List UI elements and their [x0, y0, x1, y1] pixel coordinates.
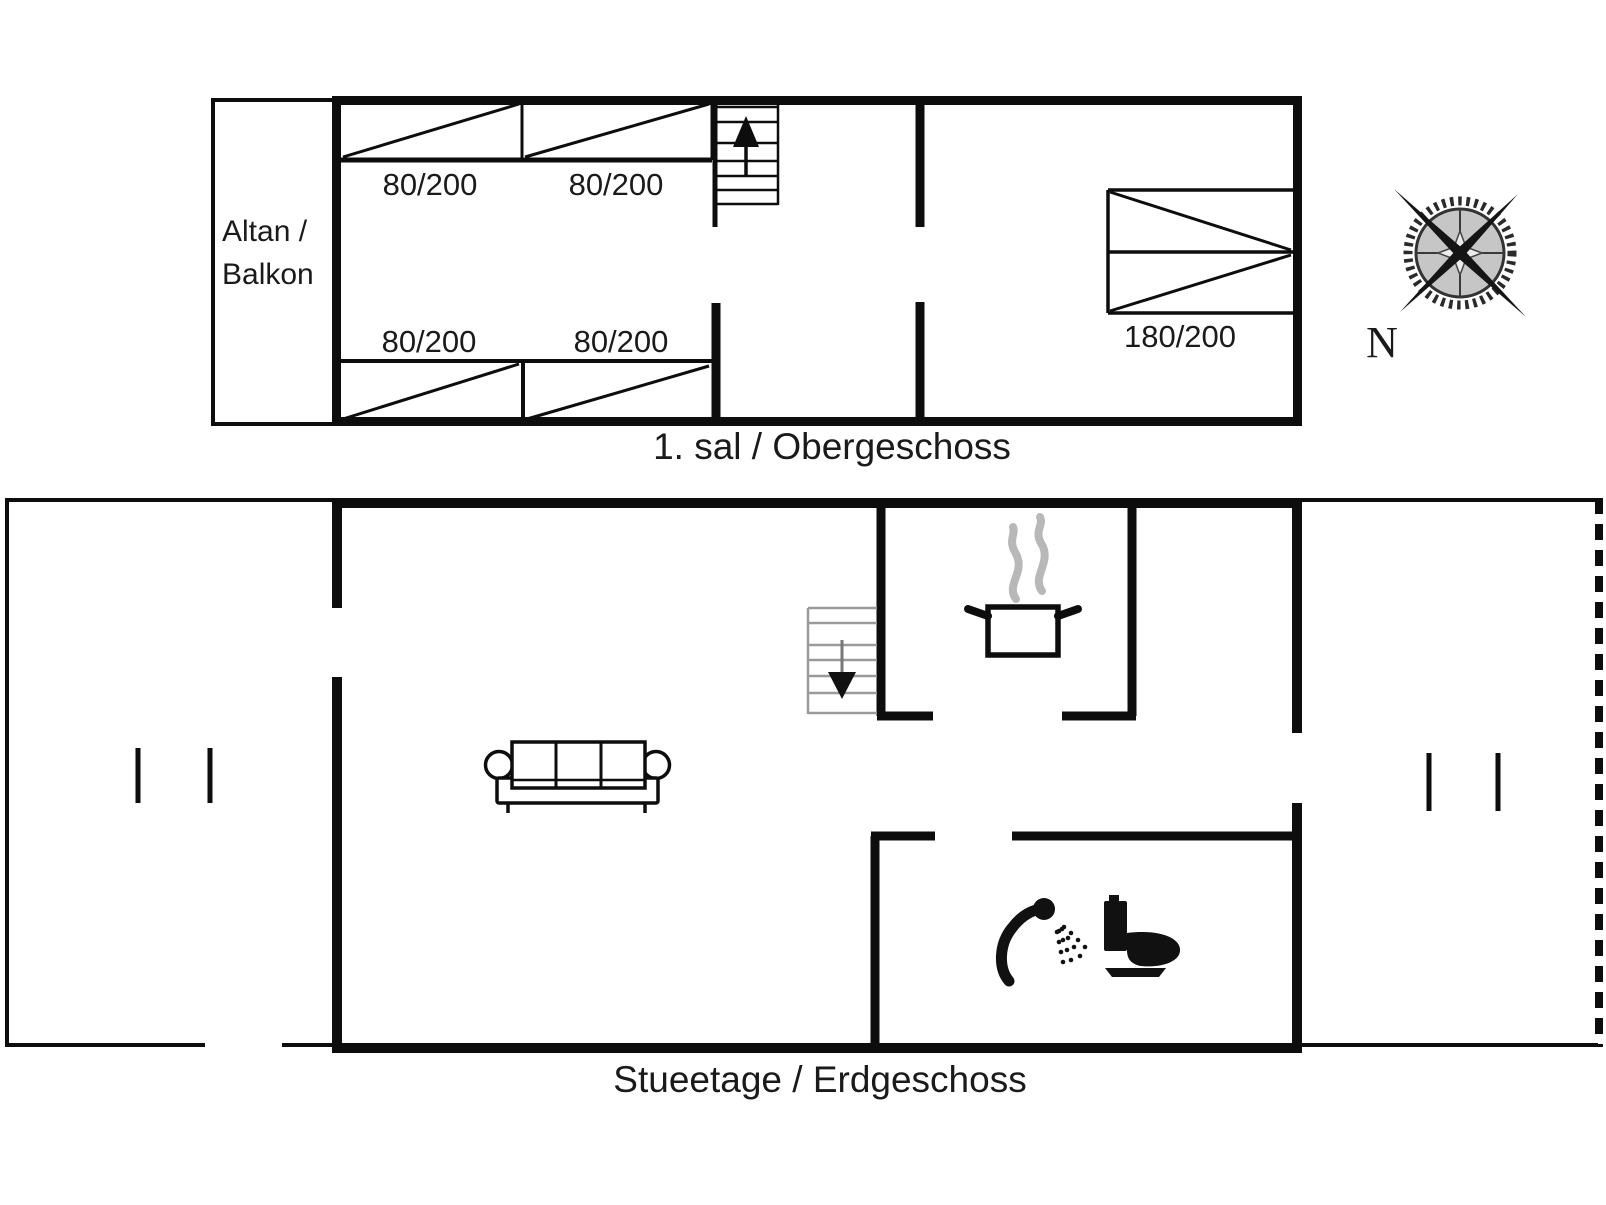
terrace-right [1302, 498, 1599, 1047]
balcony-label-line2: Balkon [222, 258, 314, 291]
balcony: Altan / Balkon [211, 98, 336, 426]
balcony-label-line1: Altan / [222, 215, 308, 248]
single-beds-bottom: 80/200 80/200 [341, 324, 712, 420]
toilet-icon [1104, 895, 1180, 977]
upper-floor-outline [337, 101, 1298, 422]
stairs-up [715, 103, 778, 227]
bed-label-top-left: 80/200 [383, 167, 478, 202]
ground-floor: Stueetage / Erdgeschoss [5, 498, 1599, 1100]
single-beds-top: 80/200 80/200 [341, 102, 712, 202]
bed-label-double: 180/200 [1124, 319, 1236, 354]
bathroom-walls [871, 836, 1297, 1048]
floor-plan: Altan / Balkon 80/200 80/200 80/2 [0, 0, 1606, 1205]
steam-right [1038, 517, 1044, 591]
bed-label-top-right: 80/200 [569, 167, 664, 202]
terrace-left [5, 500, 336, 1046]
cooking-pot-icon [968, 517, 1078, 655]
bed-label-bottom-right: 80/200 [574, 324, 669, 359]
stairs-up-arrow [733, 116, 759, 147]
double-bed: 180/200 [1108, 190, 1293, 354]
steam-left [1012, 527, 1019, 599]
bed-label-bottom-left: 80/200 [382, 324, 477, 359]
floor-plan-svg: Altan / Balkon 80/200 80/200 80/2 [0, 0, 1606, 1205]
ground-floor-caption: Stueetage / Erdgeschoss [613, 1059, 1026, 1100]
upper-floor-caption: 1. sal / Obergeschoss [653, 426, 1011, 467]
compass-north-label: N [1366, 318, 1398, 367]
compass-rose: N [1366, 189, 1526, 367]
sofa [486, 742, 670, 813]
stairs-down [808, 608, 877, 714]
stairs-down-arrow [828, 672, 856, 699]
upper-floor: Altan / Balkon 80/200 80/200 80/2 [211, 98, 1298, 467]
shower-icon [1001, 898, 1087, 981]
